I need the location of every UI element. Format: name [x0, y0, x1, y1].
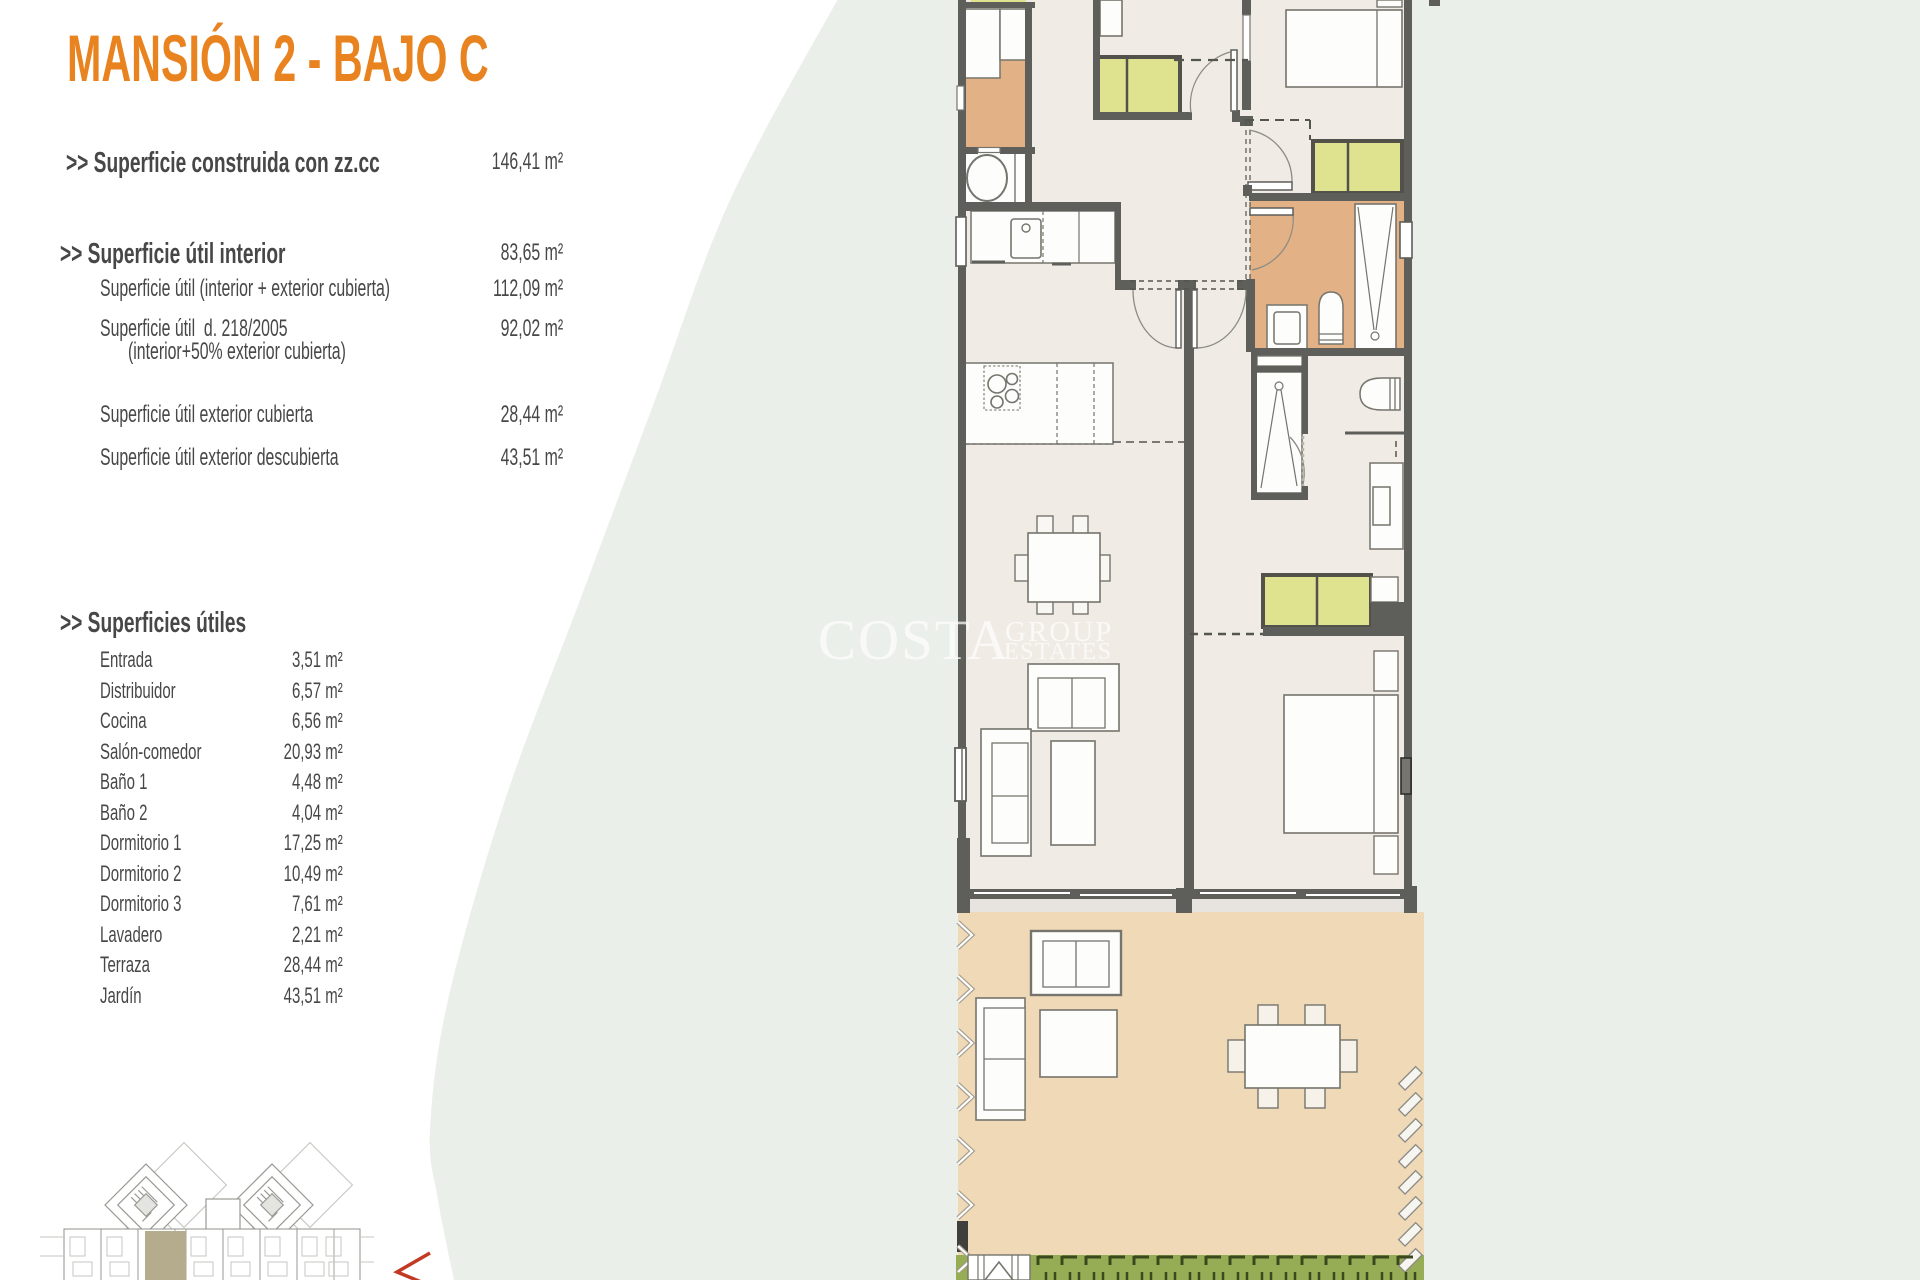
svg-text:COSTA: COSTA	[818, 609, 1010, 672]
svg-text:ESTATES: ESTATES	[1004, 639, 1113, 665]
